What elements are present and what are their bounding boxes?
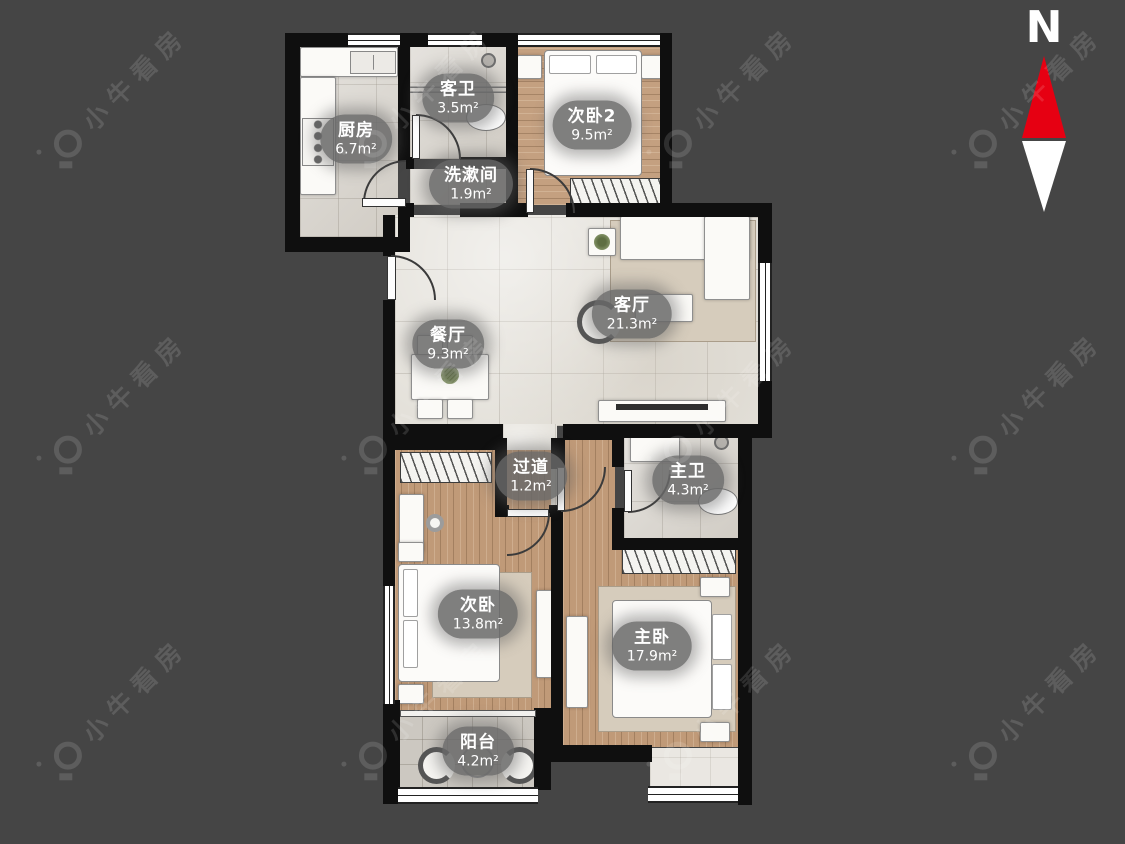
- room-name: 洗漱间: [444, 165, 498, 187]
- watermark-text: 小牛看房: [989, 628, 1111, 750]
- bedroom2-pillow-right: [596, 55, 637, 74]
- watermark-logo-icon: [963, 430, 1003, 470]
- room-label-bedroom2: 次卧2 9.5m²: [553, 101, 632, 150]
- compass-needle-icon: [1012, 54, 1076, 214]
- watermark-logo-icon: [48, 124, 88, 164]
- door-leaf-master-bath: [624, 470, 632, 512]
- window-bay: [648, 786, 738, 803]
- master-nightstand-top: [700, 577, 730, 597]
- door-leaf-kitchen: [362, 198, 406, 207]
- room-name: 过道: [510, 457, 552, 479]
- floorplan-canvas: 厨房 6.7m² 客卫 3.5m² 次卧2 9.5m² 洗漱间 1.9m² 餐厅…: [0, 0, 1125, 844]
- room-area: 3.5m²: [437, 101, 479, 118]
- master-nightstand-bottom: [700, 722, 730, 742]
- wall-master-bath-left-lower: [612, 508, 624, 542]
- wall-bedrooms-divider: [551, 511, 563, 745]
- watermark-text: 小牛看房: [684, 16, 806, 138]
- wall-living-bottom-left: [383, 424, 503, 438]
- door-leaf-guest-bath: [412, 115, 420, 159]
- kitchen-sink-icon: [350, 51, 396, 74]
- watermark-logo-icon: [48, 736, 88, 776]
- watermark: 小牛看房: [960, 628, 1110, 778]
- dining-plant-icon: [441, 366, 459, 384]
- plant-stand-plant-icon: [594, 234, 610, 250]
- wall-bedroom2-right: [660, 33, 672, 217]
- room-label-guest-bath: 客卫 3.5m²: [422, 74, 494, 123]
- wall-bedroom-top: [390, 438, 497, 450]
- wall-kitchen-right-upper: [398, 33, 410, 161]
- wall-living-bottom-right: [618, 424, 758, 438]
- window-living: [758, 263, 772, 381]
- sofa-chaise: [704, 216, 750, 300]
- room-name: 阳台: [457, 732, 499, 754]
- room-area: 1.2m²: [510, 479, 552, 496]
- dining-chair-3: [417, 399, 443, 419]
- window-kitchen: [348, 33, 400, 47]
- window-balcony: [398, 787, 538, 804]
- desk-chair: [426, 514, 444, 532]
- bedroom-nightstand-bottom: [398, 684, 424, 704]
- door-leaf-entrance: [387, 256, 396, 300]
- door-leaf-bedroom2: [526, 169, 534, 213]
- room-label-bedroom: 次卧 13.8m²: [438, 590, 518, 639]
- room-name: 主卫: [667, 461, 709, 483]
- room-area: 17.9m²: [627, 649, 677, 666]
- watermark: 小牛看房: [960, 322, 1110, 472]
- room-name: 餐厅: [427, 325, 469, 347]
- wall-right-outer: [738, 424, 752, 805]
- room-area: 13.8m²: [453, 617, 503, 634]
- compass: N: [1012, 6, 1076, 214]
- room-area: 4.3m²: [667, 483, 709, 500]
- room-name: 次卧2: [568, 106, 617, 128]
- room-area: 9.3m²: [427, 347, 469, 364]
- tv-screen: [616, 404, 708, 410]
- room-area: 4.2m²: [457, 754, 499, 771]
- room-label-hallway: 过道 1.2m²: [495, 452, 567, 501]
- room-area: 1.9m²: [444, 187, 498, 204]
- watermark: 小牛看房: [45, 322, 195, 472]
- window-bedroom2: [518, 33, 660, 47]
- watermark: 小牛看房: [45, 16, 195, 166]
- watermark-text: 小牛看房: [74, 16, 196, 138]
- wall-balcony-right: [534, 708, 551, 790]
- room-label-dining: 餐厅 9.3m²: [412, 320, 484, 369]
- room-area: 6.7m²: [335, 142, 377, 159]
- room-name: 客厅: [607, 295, 657, 317]
- room-label-washroom: 洗漱间 1.9m²: [429, 160, 513, 209]
- room-label-living: 客厅 21.3m²: [592, 290, 672, 339]
- compass-north-label: N: [1012, 6, 1076, 50]
- bedroom-pillow-bottom: [403, 620, 418, 668]
- watermark-logo-icon: [963, 736, 1003, 776]
- master-pillow-bottom: [712, 664, 732, 710]
- room-name: 厨房: [335, 120, 377, 142]
- master-dresser: [566, 616, 588, 708]
- master-pillow-top: [712, 614, 732, 660]
- window-bedroom: [383, 586, 395, 704]
- bedroom-nightstand-top: [398, 542, 424, 562]
- wall-kitchen-left: [285, 33, 300, 252]
- watermark-text: 小牛看房: [989, 322, 1111, 444]
- master-wardrobe: [622, 548, 736, 574]
- wall-master-bath-left-upper: [612, 438, 624, 467]
- watermark: 小牛看房: [655, 16, 805, 166]
- shower-head-icon: [481, 53, 496, 68]
- room-label-kitchen: 厨房 6.7m²: [320, 115, 392, 164]
- watermark-logo-icon: [48, 430, 88, 470]
- watermark-text: 小牛看房: [74, 628, 196, 750]
- window-guest-bath: [428, 33, 482, 47]
- wall-washroom-front: [406, 203, 414, 217]
- dining-chair-4: [447, 399, 473, 419]
- master-nook-floor: [563, 440, 615, 550]
- room-label-master-bedroom: 主卧 17.9m²: [612, 622, 692, 671]
- watermark-logo-icon: [963, 124, 1003, 164]
- room-label-master-bath: 主卫 4.3m²: [652, 456, 724, 505]
- bedroom2-wardrobe: [570, 178, 662, 205]
- bedroom2-pillow-left: [549, 55, 591, 74]
- room-label-balcony: 阳台 4.2m²: [442, 727, 514, 776]
- wall-nook-top: [563, 424, 618, 440]
- balcony-sliding-door: [400, 710, 536, 717]
- watermark: 小牛看房: [45, 628, 195, 778]
- wall-dining-left-lower: [383, 300, 395, 430]
- bedroom-pillow-top: [403, 569, 418, 617]
- wall-dining-left-upper: [383, 215, 395, 256]
- room-area: 21.3m²: [607, 317, 657, 334]
- compass-needle-north: [1022, 56, 1066, 138]
- room-name: 主卧: [627, 627, 677, 649]
- room-name: 次卧: [453, 595, 503, 617]
- door-leaf-bedroom: [507, 509, 549, 517]
- watermark-text: 小牛看房: [74, 322, 196, 444]
- room-name: 客卫: [437, 79, 479, 101]
- bedroom2-nightstand-left: [517, 55, 542, 79]
- bedroom-wardrobe: [400, 452, 492, 483]
- wall-top-block-bottom-right: [566, 203, 772, 217]
- bay-floor: [650, 748, 738, 788]
- compass-needle-south: [1022, 141, 1066, 212]
- room-area: 9.5m²: [568, 128, 617, 145]
- wall-master-bath-bottom: [612, 538, 738, 550]
- wall-master-bottom: [551, 745, 652, 762]
